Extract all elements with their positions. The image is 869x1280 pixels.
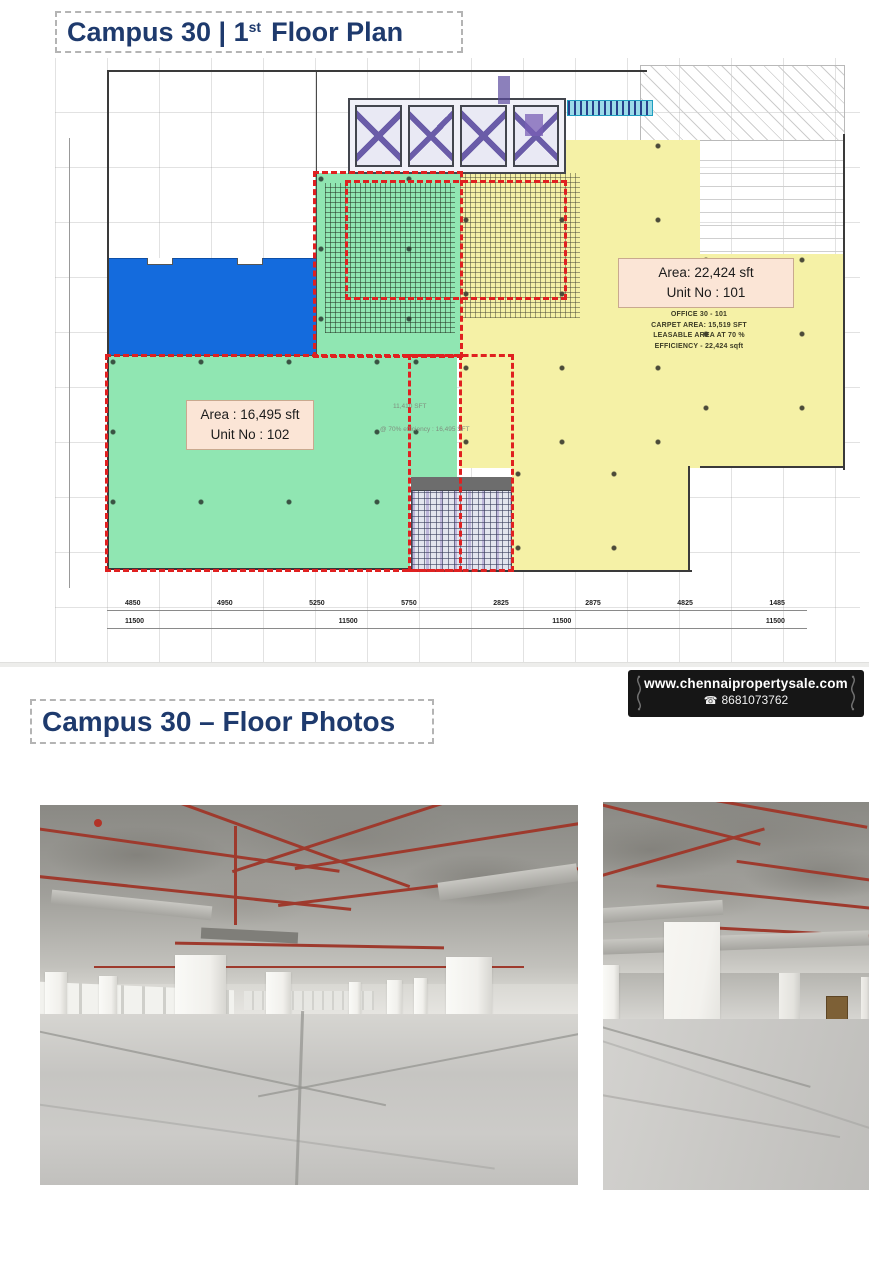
unit-101-details: OFFICE 30 - 101 CARPET AREA: 15,519 SFT … [613,310,785,368]
sprinkler-pipe [631,802,867,829]
unit-101-area: Area: 22,424 sft [621,263,791,283]
elevator-shaft-icon [460,105,507,167]
floor-seam [603,1038,869,1139]
office-detail-line: LEASABLE AREA AT 70 % [613,331,785,342]
unit-102-label: Area : 16,495 sft Unit No : 102 [186,400,314,450]
concrete-floor [40,1014,578,1185]
sprinkler-pipe [737,860,869,883]
dimension-value: 11500 [125,618,144,625]
dimension-value: 2875 [585,600,601,607]
ceiling-beam [438,863,578,900]
building-outline [843,134,845,470]
sprinkler-pipe [603,828,765,882]
shaft-block [525,114,543,136]
ceiling-beam [50,889,212,920]
section-divider [0,662,869,667]
unit-boundary-dashed [408,354,514,572]
floor-seam [40,1100,495,1169]
concrete-floor [603,1019,869,1190]
dimension-value: 5750 [401,600,417,607]
floor-seam [40,1026,386,1106]
office-detail-line: OFFICE 30 - 101 [613,310,785,321]
website-link[interactable]: www.chennaipropertysale.com [628,676,864,691]
dimension-values-row: 4850 4950 5250 5750 2825 2875 4825 1485 [125,600,785,607]
dimension-totals-row: 11500 11500 11500 11500 [125,618,785,625]
phone-number[interactable]: 8681073762 [721,693,788,707]
unit-101-label: Area: 22,424 sft Unit No : 101 [618,258,794,308]
unit-102-note: 11,410 SFT [393,403,426,410]
sprinkler-pipe [234,826,237,924]
dimension-strip: 4850 4950 5250 5750 2825 2875 4825 1485 … [55,593,845,648]
dimension-value: 11500 [339,618,358,625]
dimension-line [107,610,807,611]
elevator-bank [348,98,566,174]
sprinkler-pipe [40,805,410,887]
ceiling-duct [201,927,298,943]
unit-101-number: Unit No : 101 [621,283,791,303]
roof-hatch-area [640,65,845,141]
office-detail-line: EFFICIENCY - 22,424 sqft [613,342,785,353]
ornament-right-icon [846,675,860,711]
dimension-line [107,628,807,629]
floor-seam [295,1011,304,1185]
phone-icon: ☎ [704,694,718,707]
dimension-line-vertical [69,138,70,588]
building-outline [107,70,647,72]
elevator-shaft-icon [408,105,455,167]
ceiling [40,805,578,984]
plan-title-text: Campus 30 | 1 [67,17,249,48]
sprinkler-pipe [603,802,760,846]
floor-seam [603,1020,811,1088]
floor-seam [603,1090,841,1138]
contact-badge[interactable]: www.chennaipropertysale.com ☎8681073762 [628,670,864,717]
sprinkler-head-icon [94,819,102,827]
photos-title: Campus 30 – Floor Photos [30,699,434,744]
floor-seam [258,1029,578,1098]
ornament-left-icon [632,675,646,711]
ceiling-beam [603,900,723,924]
dimension-value: 4825 [677,600,693,607]
building-outline [688,466,690,572]
unit-101-region-lower[interactable] [512,468,690,572]
floor-photo-1 [40,805,578,1185]
ceiling-beam [603,931,869,956]
unit-102-area: Area : 16,495 sft [189,405,311,425]
building-outline [512,570,692,572]
office-detail-line: CARPET AREA: 15,519 SFT [613,321,785,332]
ceiling [603,802,869,973]
floor-plan-drawing: Area: 22,424 sft Unit No : 101 Area : 16… [55,58,860,663]
dimension-value: 5250 [309,600,325,607]
elevator-shaft-icon [355,105,402,167]
floor-photo-2 [603,802,869,1190]
staircase-icon [567,100,653,116]
sprinkler-pipe [174,942,443,949]
dimension-value: 2825 [493,600,509,607]
plan-title-superscript: st [249,19,261,35]
dimension-value: 4850 [125,600,141,607]
dimension-value: 1485 [769,600,785,607]
sprinkler-pipe [294,821,578,870]
room-outline [107,70,317,356]
phone-row[interactable]: ☎8681073762 [628,693,864,707]
plan-title: Campus 30 | 1stFloor Plan [55,11,463,53]
plan-title-suffix: Floor Plan [271,17,403,48]
dimension-value: 11500 [766,618,785,625]
unit-102-note: @ 70% efficiency : 16,495 SFT [380,426,470,433]
roof-line-area [700,148,843,252]
building-outline [700,466,845,468]
dimension-value: 11500 [552,618,571,625]
unit-boundary-dashed [345,180,567,300]
photos-title-text: Campus 30 – Floor Photos [42,706,395,738]
unit-102-number: Unit No : 102 [189,425,311,445]
shaft-block [498,76,510,104]
dimension-value: 4950 [217,600,233,607]
